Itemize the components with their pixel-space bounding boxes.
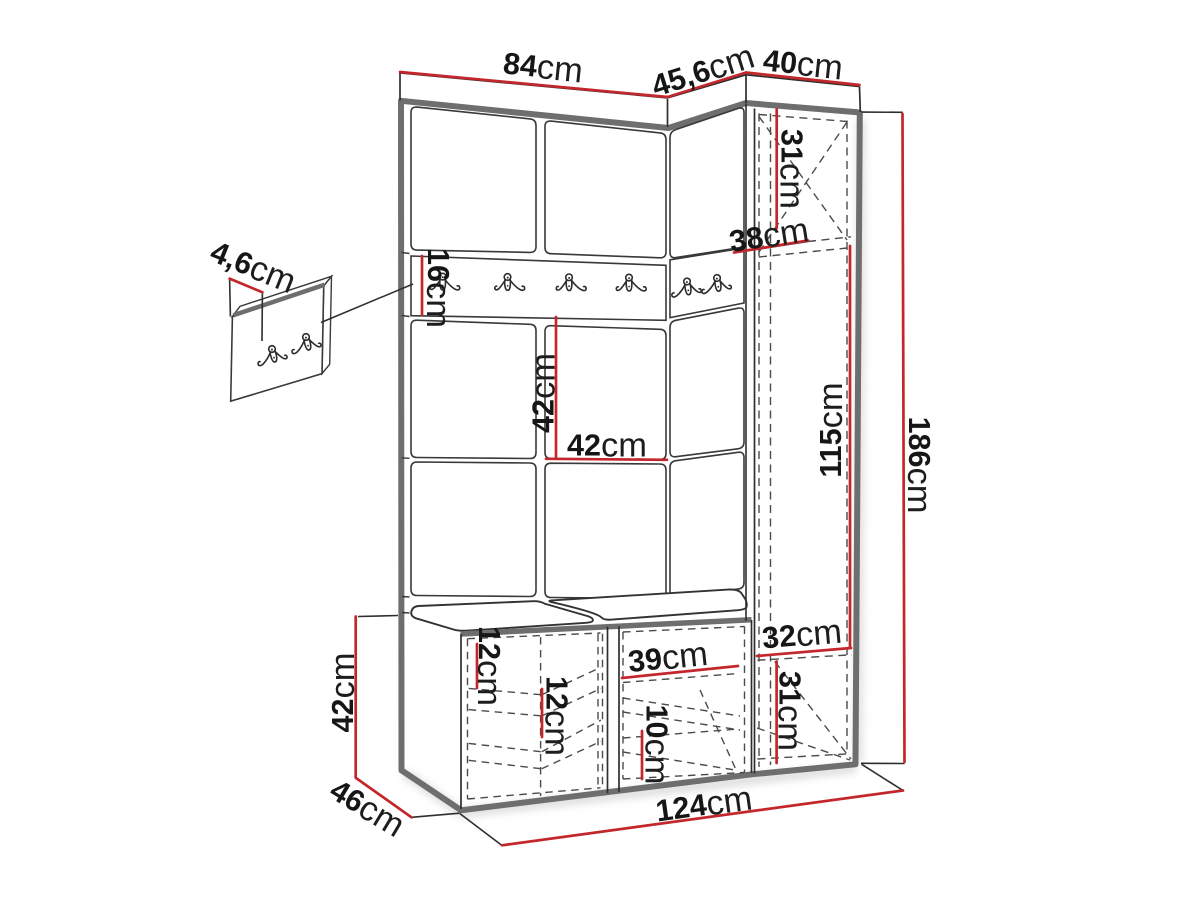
svg-text:31cm: 31cm bbox=[773, 129, 811, 209]
svg-text:10cm: 10cm bbox=[638, 705, 676, 785]
svg-text:115cm: 115cm bbox=[812, 382, 850, 477]
svg-text:16cm: 16cm bbox=[419, 248, 457, 328]
svg-text:42cm: 42cm bbox=[525, 353, 563, 433]
svg-text:12cm: 12cm bbox=[470, 626, 508, 706]
svg-text:42cm: 42cm bbox=[324, 653, 362, 733]
svg-text:186cm: 186cm bbox=[900, 417, 938, 514]
svg-text:31cm: 31cm bbox=[771, 671, 809, 751]
svg-text:12cm: 12cm bbox=[538, 676, 576, 756]
svg-text:42cm: 42cm bbox=[567, 427, 647, 465]
